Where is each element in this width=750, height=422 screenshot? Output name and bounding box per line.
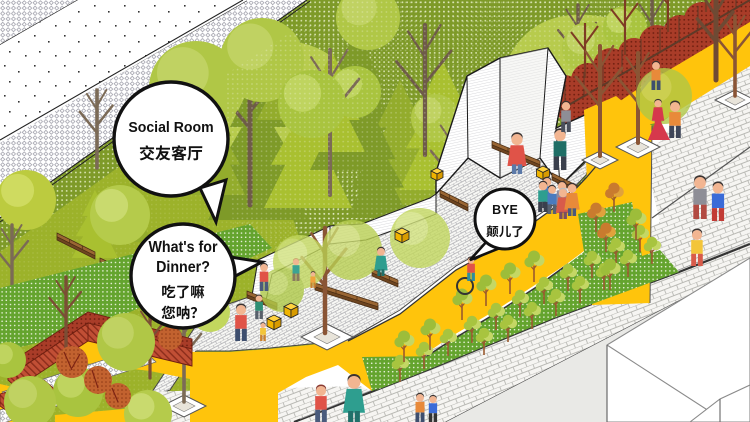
svg-text:Social Room: Social Room	[128, 120, 213, 136]
svg-text:BYE: BYE	[492, 203, 518, 217]
svg-text:What's for: What's for	[148, 240, 217, 257]
svg-text:Dinner?: Dinner?	[156, 260, 210, 277]
